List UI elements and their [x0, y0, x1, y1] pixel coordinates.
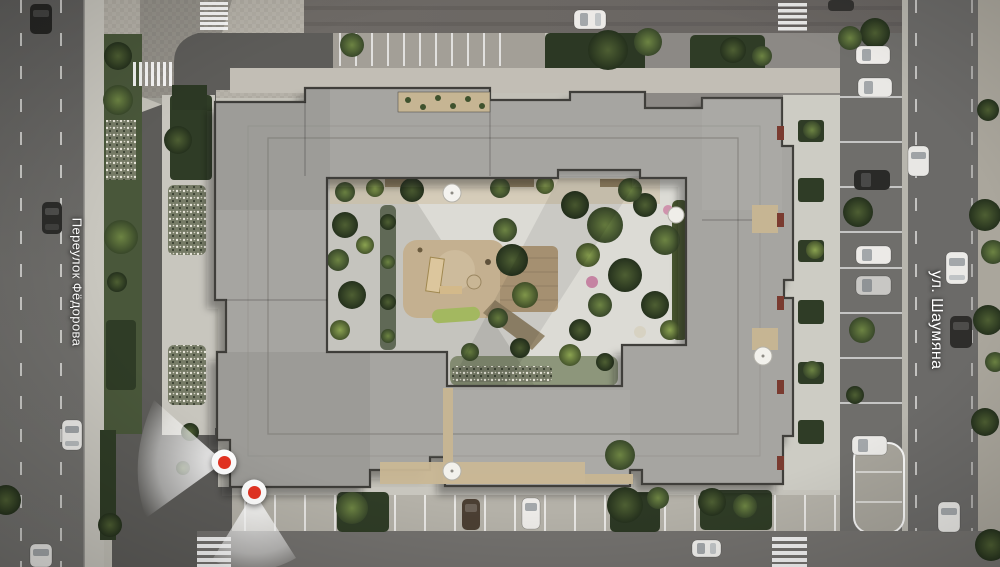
- bottom-road: [197, 531, 1000, 567]
- site-plan-graphics: [0, 0, 1000, 567]
- left-road: [0, 0, 104, 567]
- viewpoint-dot-icon: [248, 486, 261, 499]
- car: [62, 420, 82, 450]
- car: [462, 499, 480, 530]
- viewpoint-dot-icon: [218, 456, 231, 469]
- car: [908, 146, 929, 176]
- car: [574, 10, 606, 29]
- car: [856, 46, 890, 64]
- car: [522, 498, 540, 529]
- parking-bay: [854, 443, 904, 533]
- car: [856, 246, 891, 264]
- car: [946, 252, 968, 284]
- car: [938, 502, 960, 532]
- viewpoint-marker-1[interactable]: [212, 450, 237, 475]
- car: [856, 276, 891, 295]
- car: [42, 202, 62, 234]
- street-label-right: ул. Шаумяна: [927, 271, 945, 370]
- car: [30, 4, 52, 34]
- site-plan-aerial-view: Переулок Фёдорова ул. Шаумяна: [0, 0, 1000, 567]
- top-road: [290, 0, 1000, 33]
- car: [858, 78, 892, 97]
- car: [692, 540, 721, 557]
- car: [854, 170, 890, 190]
- car: [30, 544, 52, 567]
- street-label-left: Переулок Фёдорова: [70, 218, 85, 347]
- car: [852, 436, 887, 455]
- viewpoint-marker-2[interactable]: [242, 480, 267, 505]
- car: [950, 316, 972, 348]
- car: [828, 0, 854, 11]
